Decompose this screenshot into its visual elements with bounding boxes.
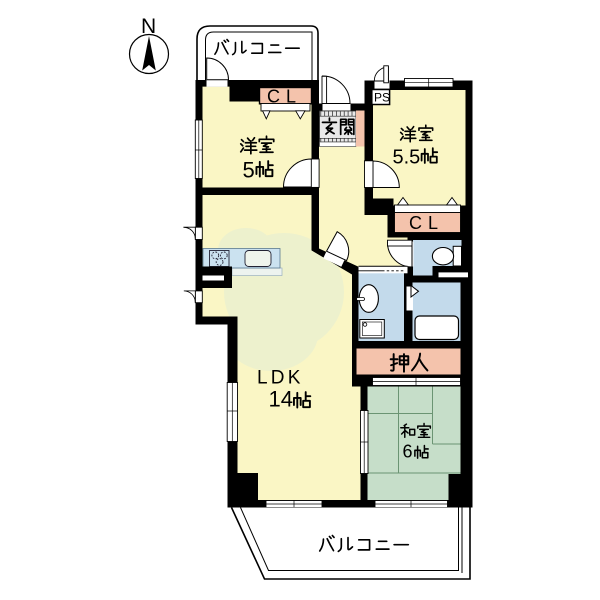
- svg-text:CL: CL: [409, 213, 444, 233]
- svg-text:LDK: LDK: [257, 368, 304, 389]
- svg-text:5: 5: [243, 158, 255, 183]
- svg-text:5.5: 5.5: [393, 147, 421, 169]
- svg-text:N: N: [141, 15, 156, 38]
- svg-text:CL: CL: [267, 87, 302, 107]
- svg-text:14: 14: [269, 387, 293, 412]
- svg-text:6: 6: [403, 442, 413, 462]
- svg-text:PS: PS: [374, 91, 390, 105]
